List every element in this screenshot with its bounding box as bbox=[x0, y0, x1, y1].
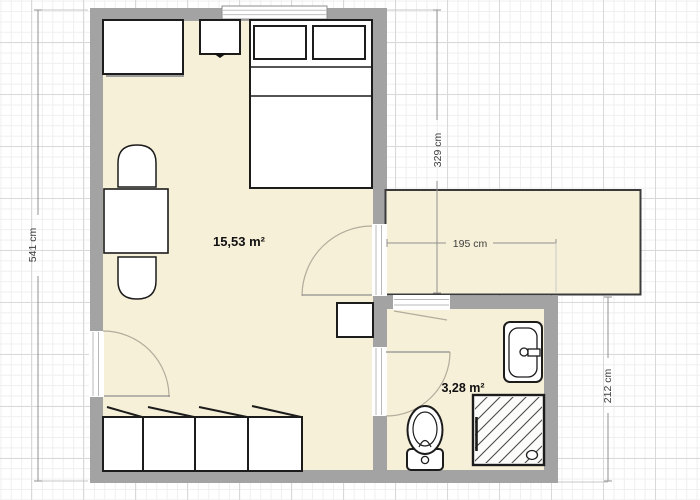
wall-right-lower[interactable] bbox=[373, 416, 387, 470]
window-top[interactable] bbox=[222, 6, 327, 19]
wall-bathroom-right[interactable] bbox=[544, 296, 558, 483]
sink[interactable] bbox=[504, 322, 542, 382]
sink-faucet bbox=[528, 349, 540, 356]
dimension-label-212: 212 cm bbox=[602, 369, 614, 404]
cabinet-1[interactable] bbox=[103, 417, 143, 471]
toilet-flush-button bbox=[421, 456, 428, 463]
chair-bottom[interactable] bbox=[118, 257, 156, 299]
wardrobe[interactable] bbox=[103, 20, 183, 74]
chair-top[interactable] bbox=[118, 145, 156, 187]
toilet[interactable] bbox=[407, 406, 443, 470]
pillow-right bbox=[313, 26, 365, 59]
wall-left[interactable] bbox=[90, 8, 103, 483]
shower-drain bbox=[527, 451, 538, 460]
sink-drain bbox=[520, 348, 528, 356]
cabinet-3[interactable] bbox=[195, 417, 248, 471]
shower[interactable] bbox=[473, 395, 544, 465]
nightstand[interactable] bbox=[200, 20, 240, 58]
dimension-label-195: 195 cm bbox=[453, 238, 488, 250]
side-table[interactable] bbox=[337, 303, 373, 337]
cabinet-2[interactable] bbox=[143, 417, 195, 471]
bathroom-area-label: 3,28 m² bbox=[441, 381, 484, 395]
floorplan-canvas: 541 cm 329 cm 195 cm 212 cm 15,53 m² 3,2… bbox=[0, 0, 700, 500]
corridor-area[interactable] bbox=[386, 190, 641, 295]
dimension-label-541: 541 cm bbox=[27, 228, 39, 263]
dining-table[interactable] bbox=[104, 189, 168, 253]
double-bed[interactable] bbox=[250, 20, 372, 188]
dimension-label-329: 329 cm bbox=[432, 133, 444, 168]
floorplan-drawing: 541 cm 329 cm 195 cm 212 cm 15,53 m² 3,2… bbox=[0, 0, 700, 500]
cabinet-4[interactable] bbox=[248, 417, 302, 471]
pillow-left bbox=[254, 26, 306, 59]
main-room-area-label: 15,53 m² bbox=[213, 234, 266, 249]
